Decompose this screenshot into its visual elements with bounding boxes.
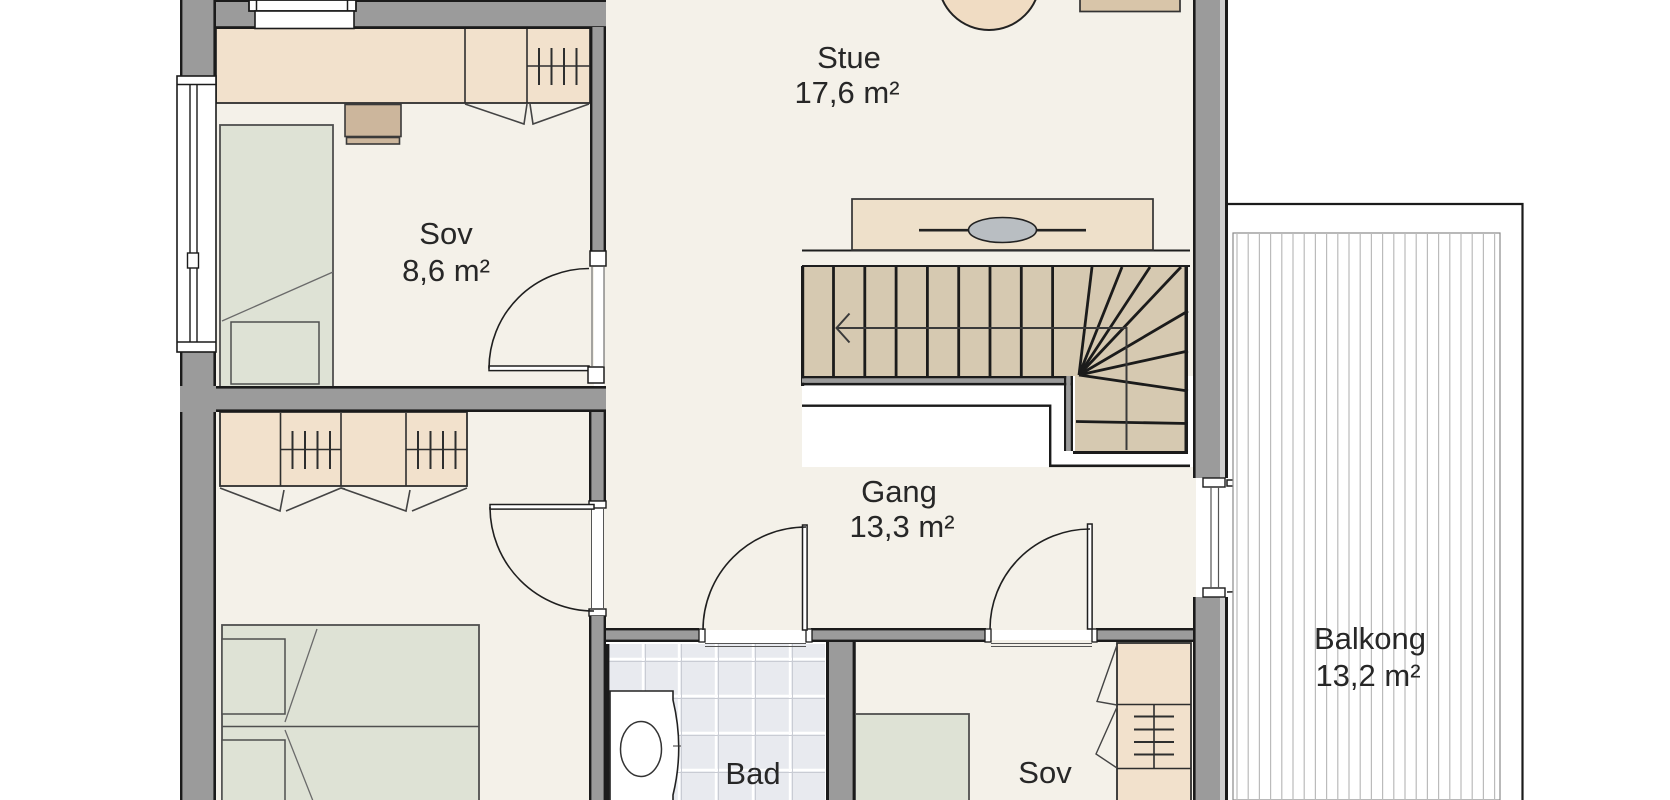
svg-text:Balkong: Balkong bbox=[1314, 621, 1426, 656]
svg-text:Sov: Sov bbox=[1018, 755, 1072, 790]
svg-text:Gang: Gang bbox=[861, 474, 937, 509]
svg-text:Stue: Stue bbox=[817, 40, 881, 75]
svg-text:13,3 m²: 13,3 m² bbox=[849, 509, 954, 544]
svg-text:Bad: Bad bbox=[725, 756, 780, 791]
svg-text:13,2 m²: 13,2 m² bbox=[1315, 658, 1420, 693]
svg-text:7,2 m²: 7,2 m² bbox=[1003, 795, 1091, 800]
svg-text:17,6 m²: 17,6 m² bbox=[794, 75, 899, 110]
svg-text:4,4 m²: 4,4 m² bbox=[711, 795, 799, 800]
svg-text:8,6 m²: 8,6 m² bbox=[402, 253, 490, 288]
svg-text:Sov: Sov bbox=[419, 216, 473, 251]
